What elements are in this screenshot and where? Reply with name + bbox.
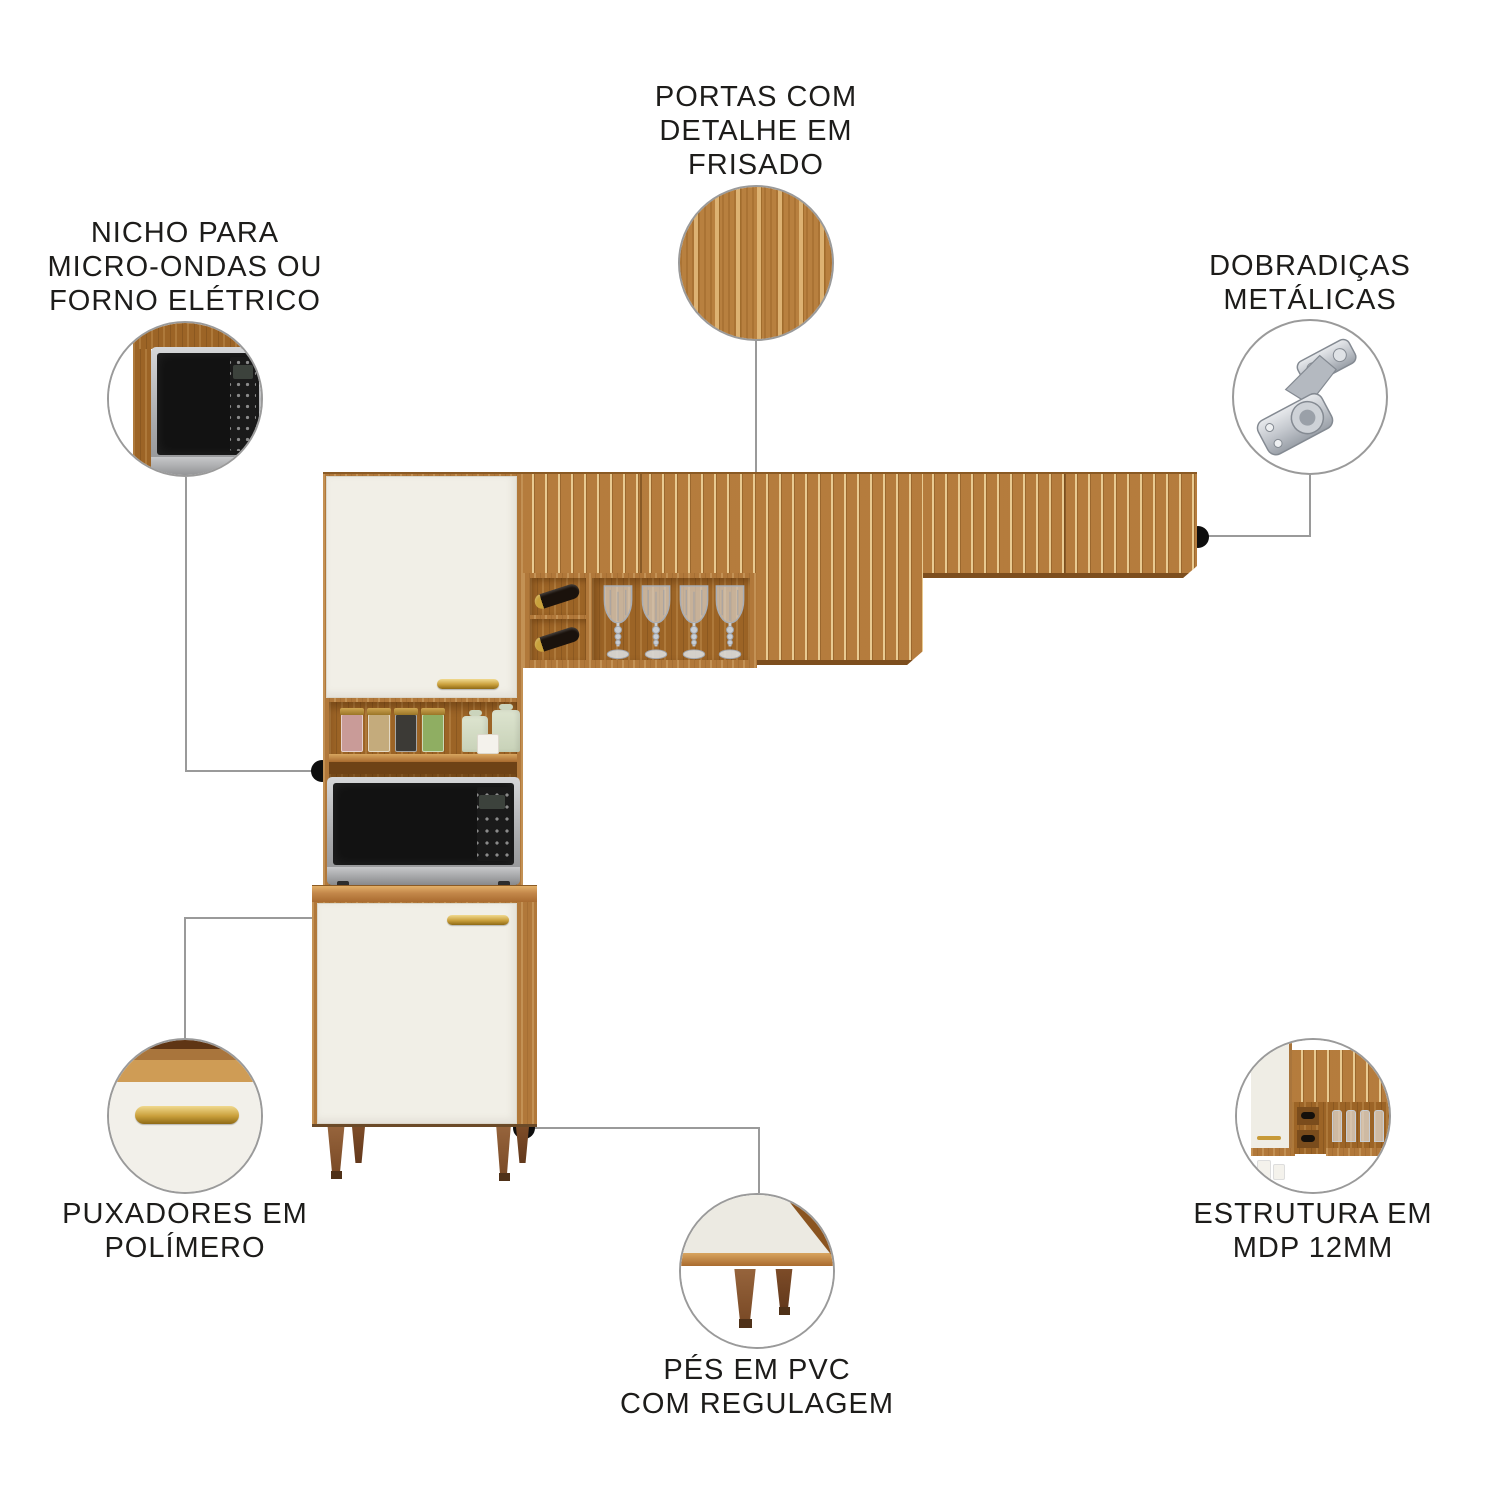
wine-glass-icon <box>712 584 748 662</box>
spice-shelf <box>329 702 517 754</box>
upper-cabinet-doors-right <box>923 472 1197 578</box>
cabinet-foot <box>494 1127 513 1175</box>
handle-detail-icon <box>135 1106 239 1124</box>
spice-jar-icon <box>341 714 363 752</box>
leader-line-dobradicas-vertical <box>1309 475 1311 537</box>
cabinet-foot-tip <box>499 1173 510 1181</box>
cabinet-foot-tip <box>331 1171 342 1179</box>
microwave-detail-icon <box>151 347 263 477</box>
wine-glass-icon <box>676 584 712 662</box>
counter-edge <box>109 1040 263 1082</box>
product-feature-diagram: PORTAS COM DETALHE EM FRISADO NICHO PARA… <box>0 0 1500 1500</box>
hinge-icon <box>1234 321 1386 473</box>
label-dobradicas: DOBRADIÇAS METÁLICAS <box>1110 249 1500 317</box>
puxadores-detail-circle <box>107 1038 263 1194</box>
wine-bottle-icon <box>533 582 581 610</box>
portas-detail-circle <box>678 185 834 341</box>
dobradicas-detail-circle <box>1232 319 1388 475</box>
leader-line-nicho-vertical <box>185 477 187 772</box>
feet-detail-icon <box>681 1195 833 1347</box>
glass-niche <box>592 578 750 660</box>
lower-white-door <box>317 903 517 1124</box>
pes-detail-circle <box>679 1193 835 1349</box>
wine-glass-icon <box>638 584 674 662</box>
leader-line-puxadores-vertical <box>184 917 186 1038</box>
wine-cubby <box>530 619 586 660</box>
fluted-wood-texture-icon <box>680 187 832 339</box>
small-jar-icon <box>477 734 499 754</box>
base-cabinet <box>312 902 537 1127</box>
niche-top-panel <box>139 323 263 349</box>
leader-line-dobradicas-horizontal <box>1198 535 1311 537</box>
structure-detail-icon <box>1237 1040 1389 1192</box>
label-estrutura: ESTRUTURA EM MDP 12MM <box>1113 1197 1500 1265</box>
estrutura-detail-circle <box>1235 1038 1391 1194</box>
wine-bottle-icon <box>533 625 581 653</box>
leader-line-pes-horizontal <box>524 1127 760 1129</box>
label-portas: PORTAS COM DETALHE EM FRISADO <box>556 80 956 182</box>
wine-cubby <box>530 578 586 615</box>
lower-door-handle <box>447 915 509 925</box>
label-puxadores: PUXADORES EM POLÍMERO <box>0 1197 385 1265</box>
leader-line-pes-vertical <box>758 1127 760 1193</box>
shelf-gap <box>329 762 517 774</box>
spice-jar-icon <box>368 714 390 752</box>
shelf-board <box>329 754 517 762</box>
upper-white-door <box>326 476 517 698</box>
base-counter <box>312 885 537 902</box>
leader-line-nicho-horizontal <box>185 770 322 772</box>
tall-cabinet <box>323 472 523 885</box>
upper-door-handle <box>437 679 499 689</box>
upper-cabinet-doors-left <box>523 472 757 579</box>
cabinet-foot <box>350 1127 367 1163</box>
open-shelf-unit <box>523 573 757 668</box>
upper-cabinet-door-center <box>757 472 923 665</box>
nicho-detail-circle <box>107 321 263 477</box>
wine-glass-icon <box>600 584 636 662</box>
spice-jar-icon <box>395 714 417 752</box>
cabinet-foot <box>325 1127 347 1173</box>
spice-jar-icon <box>422 714 444 752</box>
door-seam <box>1064 474 1066 573</box>
label-nicho: NICHO PARA MICRO-ONDAS OU FORNO ELÉTRICO <box>0 216 385 318</box>
door-seam <box>640 474 642 575</box>
microwave <box>327 777 520 885</box>
label-pes: PÉS EM PVC COM REGULAGEM <box>557 1353 957 1421</box>
